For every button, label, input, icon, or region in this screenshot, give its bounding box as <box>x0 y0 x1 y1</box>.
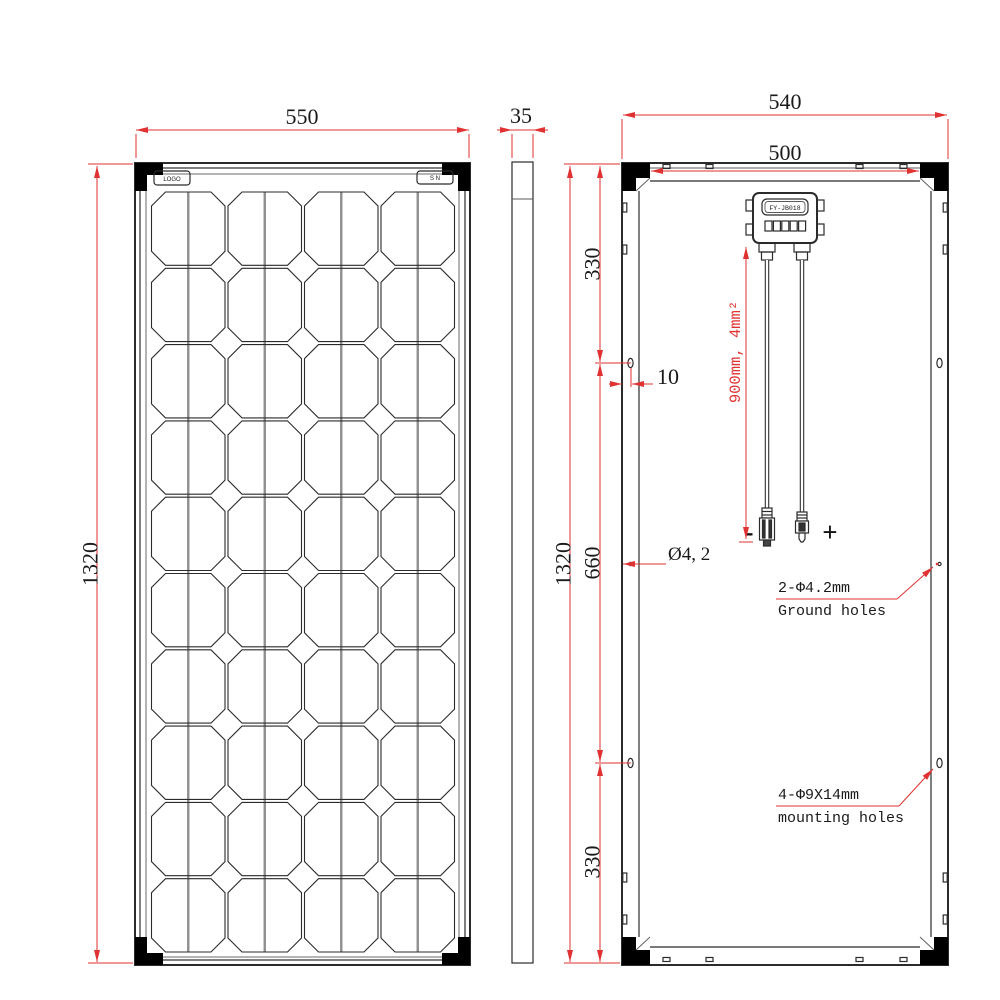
mounting-hole-top-right <box>937 358 942 367</box>
mounting-hole-bottom-right <box>937 758 942 767</box>
corner-bracket-back-top-left <box>622 163 650 191</box>
mounting-holes-note-line1: 4-Φ9X14mm <box>778 787 859 804</box>
cable-gland-positive-tip <box>797 252 808 260</box>
dim-label-back-1320: 1320 <box>551 542 576 586</box>
dim-label-dia-4-2: Ø4, 2 <box>668 544 710 565</box>
front-view: LOGO S N <box>135 163 470 965</box>
mounting-holes-note-line2: mounting holes <box>778 810 904 827</box>
dim-side-thickness-35: 35 <box>497 103 548 158</box>
dim-label-540: 540 <box>769 89 802 114</box>
dim-label-35: 35 <box>510 103 532 128</box>
side-view <box>512 162 533 963</box>
dim-label-10: 10 <box>657 364 679 389</box>
technical-drawing-page: LOGO S N <box>0 0 1000 1000</box>
junction-box-clip-right-2 <box>817 224 824 235</box>
ground-holes-note-line2: Ground holes <box>778 603 886 620</box>
junction-box-clip-left-1 <box>746 200 753 211</box>
dim-label-330-bottom: 330 <box>580 846 605 879</box>
note-mounting-holes: 4-Φ9X14mm mounting holes <box>776 769 933 827</box>
serial-number-label: S N <box>430 176 440 182</box>
front-glass-edge <box>146 174 459 957</box>
mc4-connector-positive <box>796 512 809 542</box>
cable-spec-label: 900mm, 4mm² <box>727 301 745 403</box>
corner-bracket-front-bottom-right <box>442 937 470 965</box>
dim-back-inner-width-500: 500 <box>651 140 919 171</box>
junction-box-body <box>753 193 817 243</box>
corner-bracket-back-bottom-right <box>920 937 948 965</box>
polarity-plus-label: + <box>822 517 837 547</box>
mc4-connector-negative <box>760 508 775 546</box>
ground-holes-note-line1: 2-Φ4.2mm <box>778 580 850 597</box>
dim-label-550: 550 <box>286 104 319 129</box>
dim-cable-length-900: 900mm, 4mm² <box>727 247 753 542</box>
dim-label-500: 500 <box>769 140 802 165</box>
ground-hole-pointer-dot <box>936 563 939 566</box>
side-profile-outline <box>512 162 533 963</box>
ground-hole-right <box>938 562 941 565</box>
junction-box: FY-JB018 <box>746 193 824 260</box>
dim-label-front-1320: 1320 <box>78 542 103 586</box>
junction-box-terminals <box>765 221 806 231</box>
cell-grid <box>152 192 455 953</box>
cable-gland-negative-tip <box>762 252 773 260</box>
corner-bracket-front-top-left <box>135 163 163 191</box>
junction-box-clip-left-2 <box>746 224 753 235</box>
dim-front-height-1320: 1320 <box>78 164 134 963</box>
cables <box>767 260 802 512</box>
junction-box-model-label: FY-JB018 <box>769 205 800 212</box>
cable-gland-negative <box>759 243 775 252</box>
dim-back-height-1320: 1320 <box>551 166 576 962</box>
corner-bracket-front-bottom-left <box>135 937 163 965</box>
cable-gland-positive <box>794 243 810 252</box>
dim-label-660: 660 <box>580 547 605 580</box>
front-frame-outer <box>135 163 470 965</box>
corner-bracket-back-top-right <box>920 163 948 191</box>
dim-label-330-top: 330 <box>580 248 605 281</box>
logo-label: LOGO <box>163 177 181 183</box>
dim-hole-offset-10: 10 <box>609 364 679 389</box>
solar-panel-dimension-drawing: LOGO S N <box>0 0 1000 1000</box>
corner-bracket-front-top-right <box>442 163 470 191</box>
dim-front-width-550: 550 <box>136 104 469 158</box>
dim-ground-hole-diameter: Ø4, 2 <box>623 544 710 565</box>
corner-bracket-back-bottom-left <box>622 937 650 965</box>
junction-box-clip-right-1 <box>817 200 824 211</box>
note-ground-holes: 2-Φ4.2mm Ground holes <box>776 563 938 620</box>
